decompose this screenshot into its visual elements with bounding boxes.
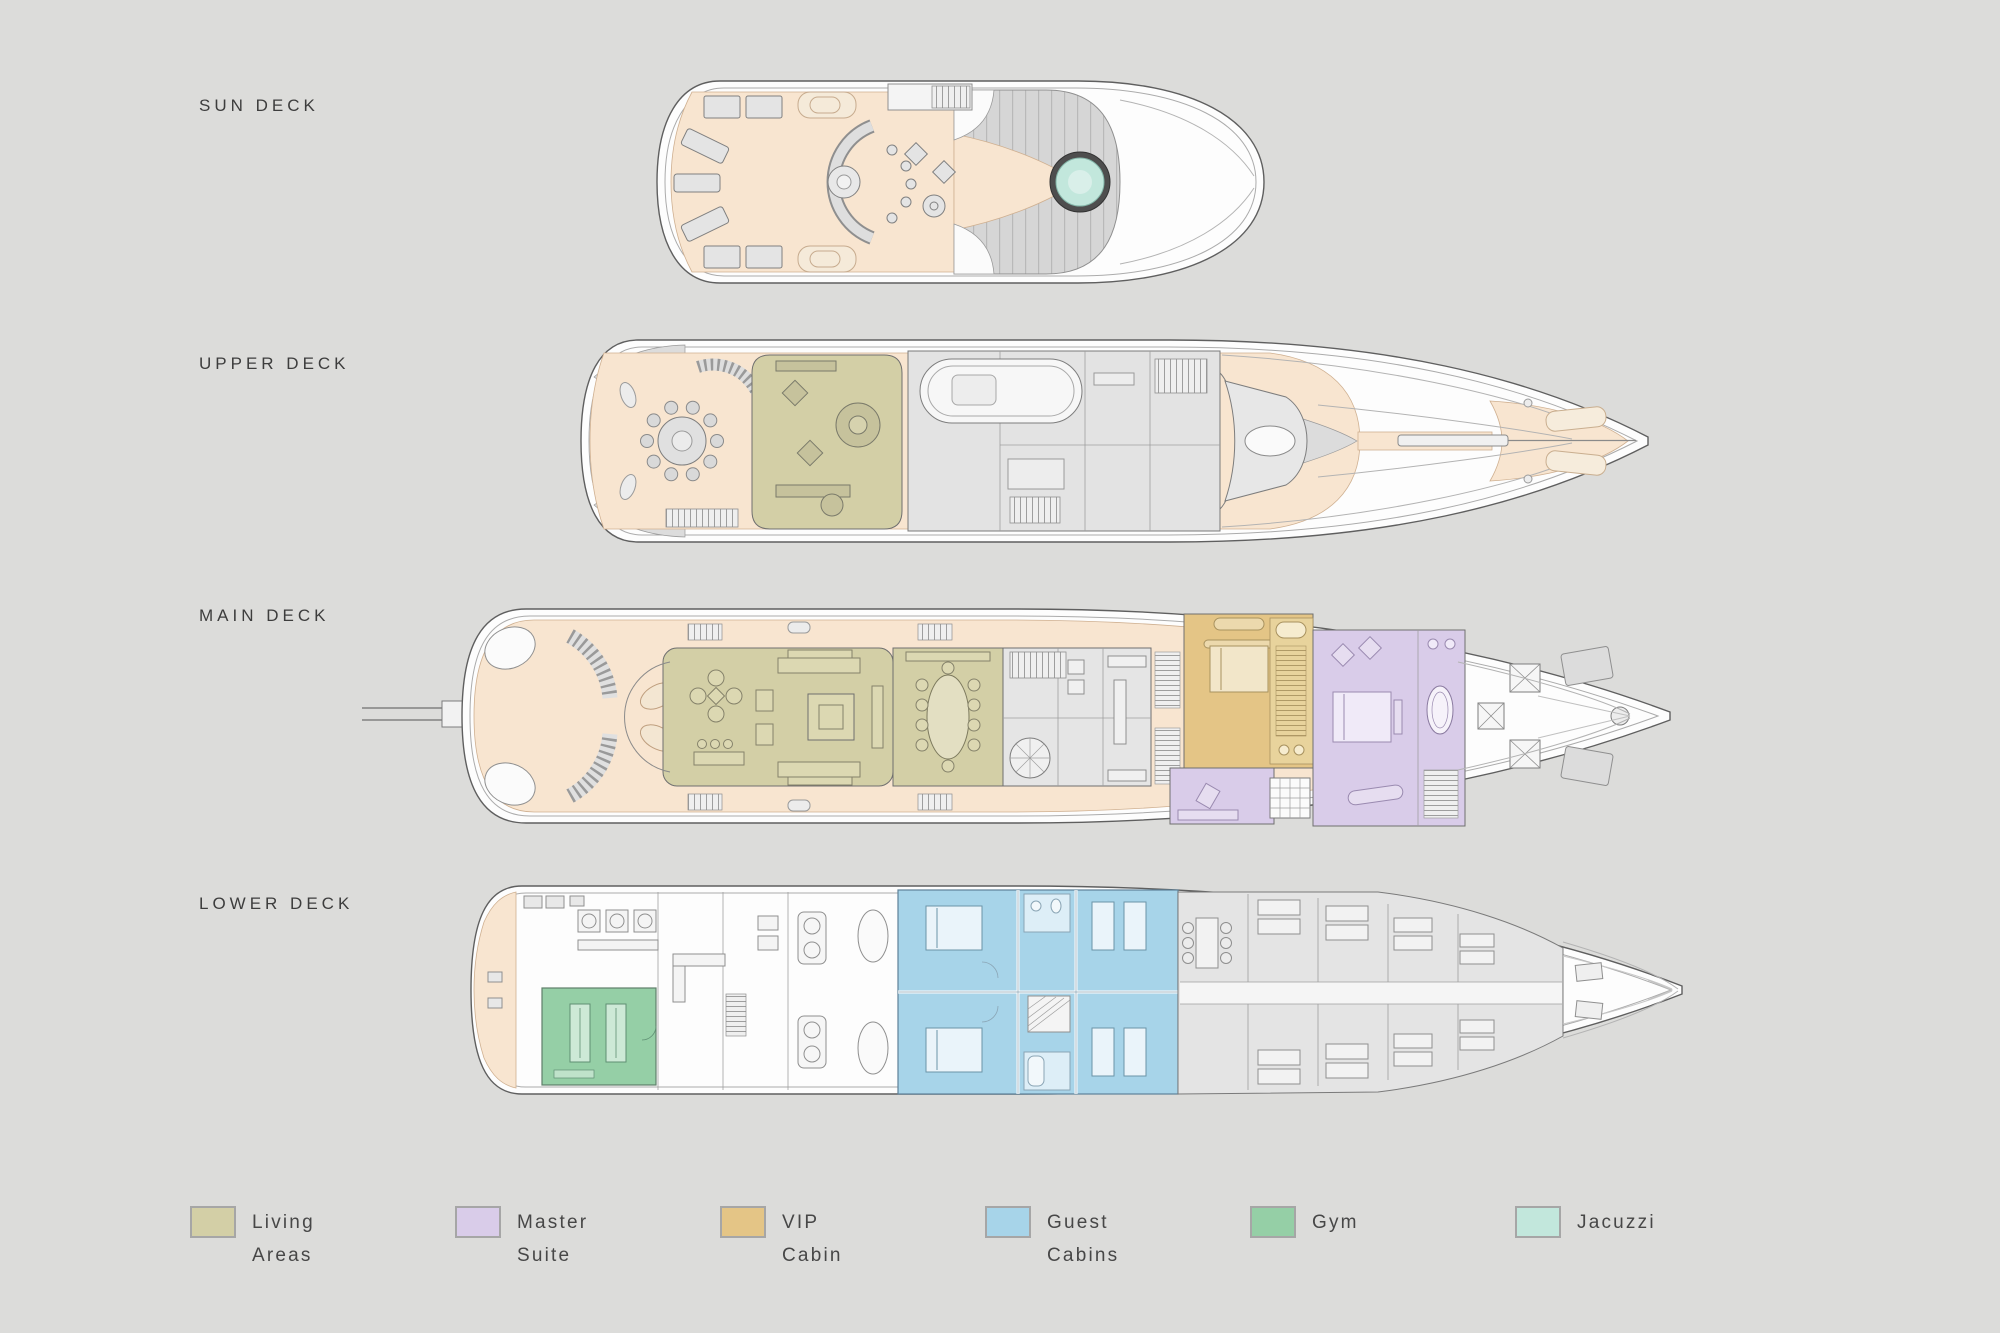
upper-deck-sky-lounge-living-area — [752, 355, 902, 529]
yacht-deck-plans: SUN DECK UPPER DECK MAIN DECK LOWER DECK — [0, 0, 2000, 1333]
master-suite-study — [1170, 768, 1274, 824]
legend-label-master-line2: Suite — [517, 1239, 588, 1272]
jacuzzi — [1050, 152, 1110, 212]
deck-label-upper-deck: UPPER DECK — [199, 354, 350, 374]
legend-item-master-suite: Master Suite — [455, 1206, 588, 1272]
legend-swatch-jacuzzi — [1515, 1206, 1561, 1238]
passerelle — [362, 701, 466, 727]
legend-item-guest-cabins: Guest Cabins — [985, 1206, 1119, 1272]
guest-cabins — [898, 890, 1178, 1094]
deck-label-lower-deck: LOWER DECK — [199, 894, 353, 914]
deck-label-sun-deck: SUN DECK — [199, 96, 319, 116]
legend-item-jacuzzi: Jacuzzi — [1515, 1206, 1656, 1239]
legend-label-vip-line1: VIP — [782, 1206, 843, 1239]
main-deck-drawing — [358, 600, 1683, 835]
legend-label-gym-line1: Gym — [1312, 1206, 1359, 1239]
legend-label-living-line2: Areas — [252, 1239, 315, 1272]
legend-swatch-vip-cabin — [720, 1206, 766, 1238]
legend-label-living-line1: Living — [252, 1206, 315, 1239]
deck-label-main-deck: MAIN DECK — [199, 606, 329, 626]
legend-swatch-guest-cabins — [985, 1206, 1031, 1238]
legend-label-master-line1: Master — [517, 1206, 588, 1239]
crew-quarters — [1178, 892, 1563, 1094]
legend-label-jacuzzi-line1: Jacuzzi — [1577, 1206, 1656, 1239]
vip-cabin — [1184, 614, 1313, 768]
legend-item-gym: Gym — [1250, 1206, 1359, 1239]
master-suite — [1313, 630, 1465, 826]
sun-deck-drawing — [648, 76, 1270, 288]
legend-swatch-living-areas — [190, 1206, 236, 1238]
main-deck-dining-living-area — [893, 648, 1003, 786]
legend-label-guest-line2: Cabins — [1047, 1239, 1119, 1272]
legend-swatch-gym — [1250, 1206, 1296, 1238]
main-deck-salon-living-area — [625, 648, 893, 786]
upper-deck-drawing — [570, 333, 1655, 549]
legend-item-living-areas: Living Areas — [190, 1206, 315, 1272]
tender — [920, 359, 1082, 423]
legend-item-vip-cabin: VIP Cabin — [720, 1206, 843, 1272]
legend-label-vip-line2: Cabin — [782, 1239, 843, 1272]
gym — [542, 988, 656, 1085]
legend-swatch-master-suite — [455, 1206, 501, 1238]
lower-deck-drawing — [458, 876, 1688, 1106]
legend-label-guest-line1: Guest — [1047, 1206, 1119, 1239]
